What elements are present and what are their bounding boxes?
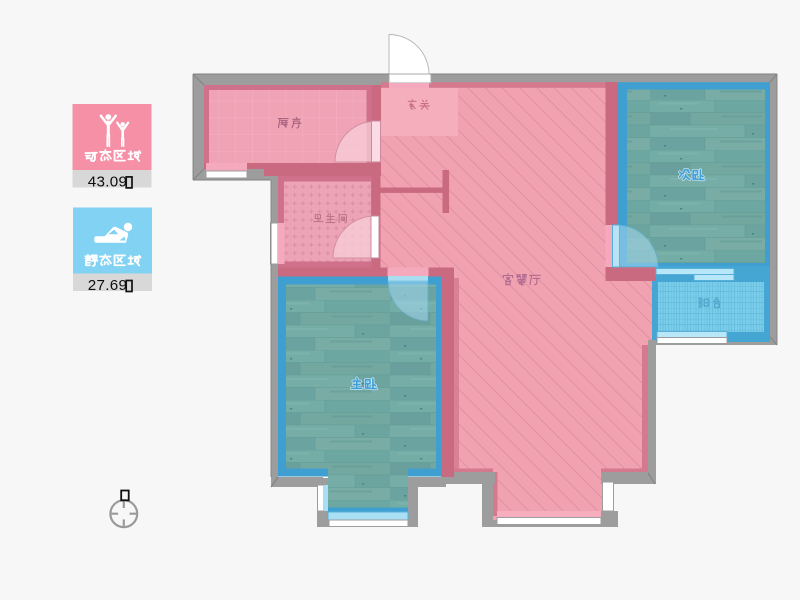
svg-text:43.09: 43.09 (88, 173, 128, 190)
svg-text:27.69: 27.69 (88, 277, 128, 294)
